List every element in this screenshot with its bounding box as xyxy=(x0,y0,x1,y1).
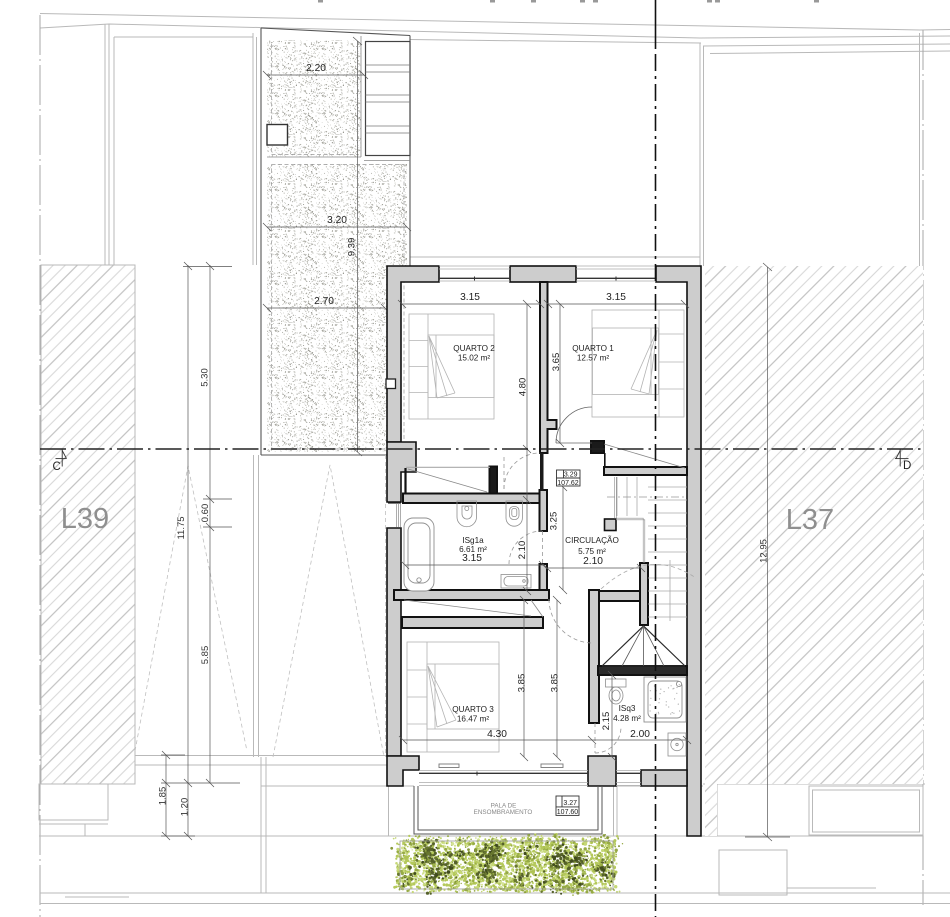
svg-text:ISq3: ISq3 xyxy=(619,704,636,713)
svg-text:3.15: 3.15 xyxy=(606,292,626,303)
svg-text:ISg1a: ISg1a xyxy=(462,536,484,545)
svg-text:QUARTO 2: QUARTO 2 xyxy=(453,344,495,353)
svg-text:6.61 m²: 6.61 m² xyxy=(459,545,487,554)
svg-text:1.20: 1.20 xyxy=(180,798,191,817)
svg-text:3.27: 3.27 xyxy=(563,800,577,807)
svg-text:3.15: 3.15 xyxy=(462,553,482,564)
svg-text:11.75: 11.75 xyxy=(176,516,187,539)
svg-text:2.70: 2.70 xyxy=(314,296,334,307)
svg-text:12.57 m²: 12.57 m² xyxy=(577,354,610,363)
svg-text:3.65: 3.65 xyxy=(551,353,562,372)
svg-text:2.10: 2.10 xyxy=(517,541,528,560)
svg-text:5.85: 5.85 xyxy=(200,646,211,665)
svg-text:2.15: 2.15 xyxy=(601,712,612,731)
svg-text:L39: L39 xyxy=(61,503,109,535)
svg-text:4.28 m²: 4.28 m² xyxy=(613,714,641,723)
svg-text:1.85: 1.85 xyxy=(158,787,169,806)
svg-text:CIRCULAÇÃO: CIRCULAÇÃO xyxy=(565,535,619,545)
svg-text:2.00: 2.00 xyxy=(630,729,650,740)
svg-text:12.95: 12.95 xyxy=(759,539,770,563)
svg-text:2.10: 2.10 xyxy=(583,556,603,567)
svg-text:3.25: 3.25 xyxy=(549,512,560,531)
svg-text:C: C xyxy=(53,461,61,473)
svg-text:QUARTO 1: QUARTO 1 xyxy=(572,344,614,353)
svg-text:107.60: 107.60 xyxy=(557,809,579,816)
svg-text:3.85: 3.85 xyxy=(517,674,528,693)
svg-text:9.39: 9.39 xyxy=(347,238,358,257)
svg-text:4.30: 4.30 xyxy=(487,729,507,740)
svg-text:D: D xyxy=(903,460,911,472)
svg-text:5.75 m²: 5.75 m² xyxy=(578,547,606,556)
svg-text:107.62: 107.62 xyxy=(557,480,579,487)
svg-text:QUARTO 3: QUARTO 3 xyxy=(452,705,494,714)
svg-text:5.30: 5.30 xyxy=(200,368,211,387)
svg-text:ENSOMBRAMENTO: ENSOMBRAMENTO xyxy=(474,809,533,816)
svg-text:L37: L37 xyxy=(786,504,834,536)
svg-text:0.60: 0.60 xyxy=(200,504,211,523)
svg-text:3.20: 3.20 xyxy=(327,215,347,226)
svg-text:3.29: 3.29 xyxy=(564,472,578,479)
svg-text:16.47 m²: 16.47 m² xyxy=(457,715,490,724)
svg-text:3.85: 3.85 xyxy=(550,674,561,693)
svg-text:3.15: 3.15 xyxy=(460,292,480,303)
svg-text:4.80: 4.80 xyxy=(518,378,529,397)
svg-text:2.20: 2.20 xyxy=(306,63,326,74)
svg-text:15.02 m²: 15.02 m² xyxy=(458,354,491,363)
